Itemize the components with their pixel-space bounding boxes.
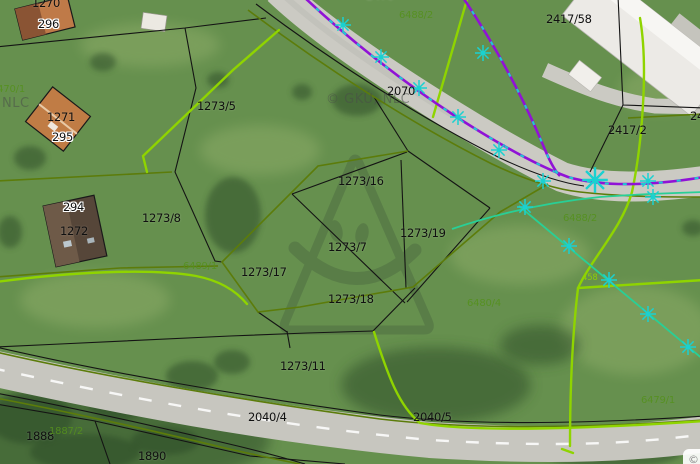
survey-star-icon [645, 189, 661, 205]
parcel-label-296: 296 [38, 19, 59, 31]
map-viewport[interactable]: © GKÚ, NLC NLC 1270296127129529412721273… [0, 0, 700, 464]
parcel-label-2040-5: 2040/5 [413, 412, 452, 424]
layer-label-6479-1: 6479/1 [641, 396, 675, 406]
survey-star-icon-large [582, 167, 608, 193]
survey-star-icon [640, 306, 656, 322]
layer-label-1887-2: 1887/2 [49, 427, 83, 437]
survey-star-icon [680, 339, 696, 355]
survey-star-icon [517, 199, 533, 215]
parcel-label-1273-8: 1273/8 [142, 213, 181, 225]
parcel-label-2417-2: 2417/2 [608, 125, 647, 137]
parcel-label-1273-7: 1273/7 [328, 242, 367, 254]
parcel-label-1273-19: 1273/19 [400, 228, 446, 240]
layer-label-6470-1: 6470/1 [0, 85, 25, 95]
survey-star-icon [601, 272, 617, 288]
survey-star-icon [535, 173, 551, 189]
parcel-label-2417: 2417 [690, 111, 700, 123]
parcel-label-2070: 2070 [387, 86, 415, 98]
parcel-label-1890: 1890 [138, 451, 166, 463]
parcel-label-1273-16: 1273/16 [338, 176, 384, 188]
parcel-label-295: 295 [52, 132, 73, 144]
parcel-label-1272: 1272 [60, 226, 88, 238]
parcel-label-294: 294 [63, 202, 84, 214]
parcel-label-1273-18: 1273/18 [328, 294, 374, 306]
map-canvas [0, 0, 700, 464]
survey-star-icon [561, 238, 577, 254]
layer-label-6480-4: 6480/4 [467, 299, 501, 309]
parcel-label-1273-17: 1273/17 [241, 267, 287, 279]
layer-label-6488-2: 6488/2 [563, 214, 597, 224]
layer-label-6489-1: 6489/1 [183, 262, 217, 272]
survey-star-icon [640, 173, 656, 189]
parcel-label-1273-5: 1273/5 [197, 101, 236, 113]
parcel-label-2470: 2470 [366, 0, 394, 3]
shed [141, 12, 167, 31]
parcel-label-2040-4: 2040/4 [248, 412, 287, 424]
layer-label-458: 458 [582, 274, 598, 283]
parcel-label-1270: 1270 [32, 0, 60, 10]
parcel-label-2417-58: 2417/58 [546, 14, 592, 26]
attribution-badge[interactable]: © [683, 449, 700, 464]
layer-label-6488-2: 6488/2 [399, 11, 433, 21]
parcel-label-1271: 1271 [47, 112, 75, 124]
nlc-watermark: NLC [2, 96, 30, 111]
parcel-label-1273-11: 1273/11 [280, 361, 326, 373]
